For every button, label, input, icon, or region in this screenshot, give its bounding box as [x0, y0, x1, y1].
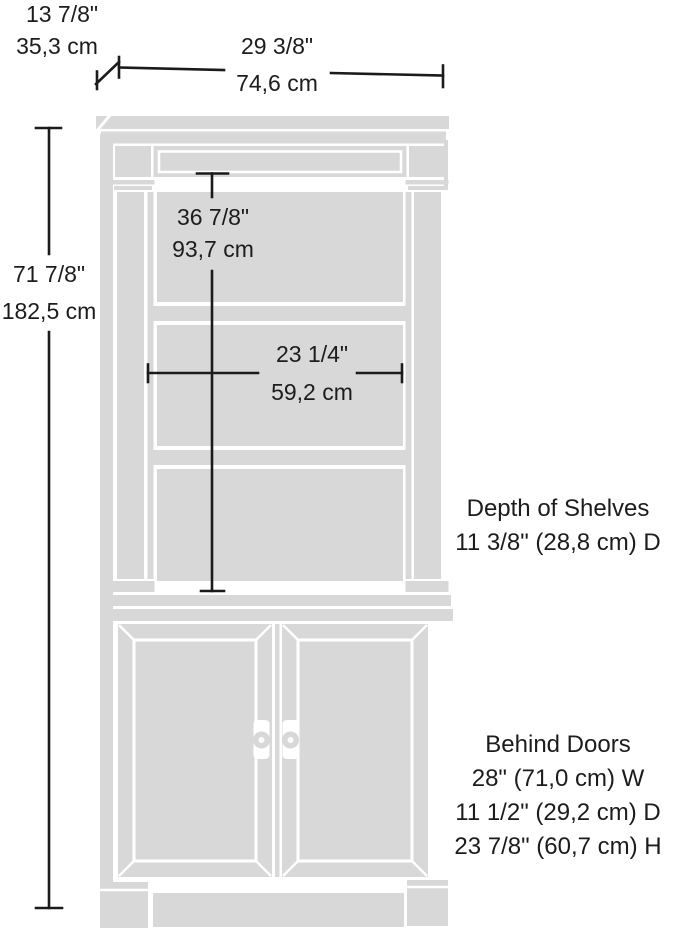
depth-dimension-inches: 13 7/8" — [12, 1, 112, 28]
interior-width-cm: 59,2 cm — [262, 379, 362, 406]
shelf — [152, 306, 408, 321]
left-door — [118, 624, 272, 877]
interior-height-inches: 36 7/8" — [165, 204, 261, 231]
depth-dim-line — [96, 62, 119, 84]
lower-opening — [157, 469, 403, 581]
interior-height-cm: 93,7 cm — [165, 236, 261, 263]
width-dimension-cm: 74,6 cm — [227, 70, 327, 97]
behind-doors-depth: 11 1/2" (29,2 cm) D — [440, 796, 676, 830]
shelf — [152, 450, 408, 465]
interior-width-inches: 23 1/4" — [262, 341, 362, 368]
shelf-depth-note: Depth of Shelves 11 3/8" (28,8 cm) D — [440, 492, 676, 560]
height-dimension-cm: 182,5 cm — [0, 298, 99, 325]
width-dimension-inches: 29 3/8" — [227, 33, 327, 60]
behind-doors-note: Behind Doors 28" (71,0 cm) W 11 1/2" (29… — [440, 728, 676, 864]
height-dimension-inches: 71 7/8" — [0, 261, 99, 288]
behind-doors-width: 28" (71,0 cm) W — [440, 762, 676, 796]
behind-doors-title: Behind Doors — [440, 728, 676, 762]
shelf-depth-title: Depth of Shelves — [440, 492, 676, 526]
shelf-depth-value: 11 3/8" (28,8 cm) D — [440, 526, 676, 560]
dimension-diagram: 13 7/8" 35,3 cm 29 3/8" 74,6 cm 71 7/8" … — [0, 0, 679, 936]
depth-dimension-cm: 35,3 cm — [3, 33, 111, 60]
right-door — [282, 624, 428, 877]
cabinet-body — [96, 116, 453, 928]
behind-doors-height: 23 7/8" (60,7 cm) H — [440, 830, 676, 864]
